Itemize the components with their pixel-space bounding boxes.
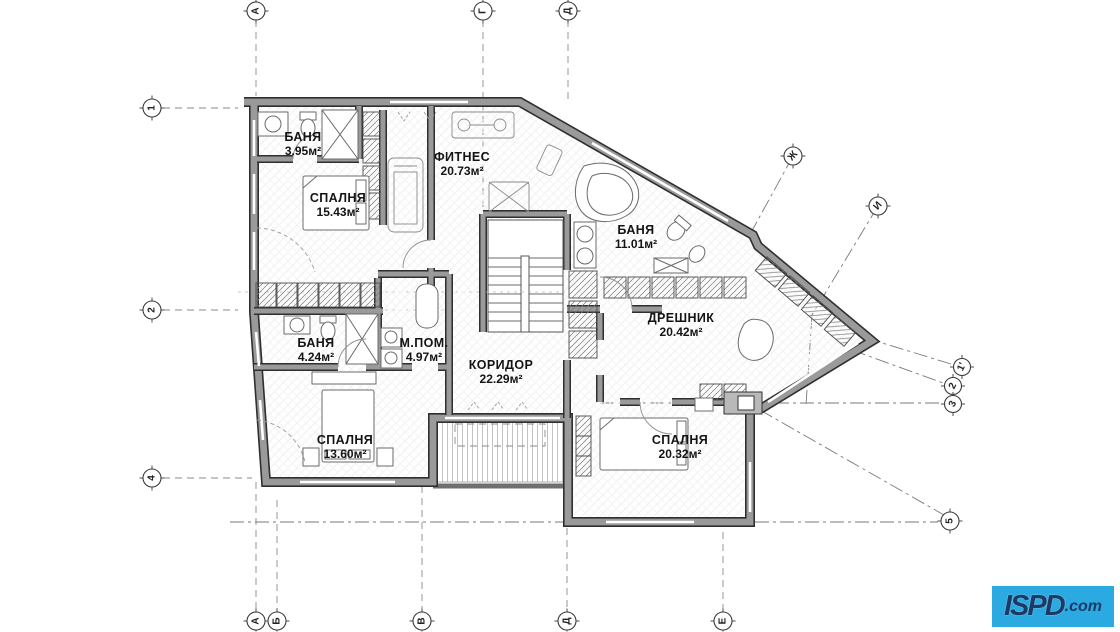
svg-text:БАНЯ: БАНЯ — [617, 223, 654, 237]
grid-marker-diag-3: 3 — [941, 392, 965, 416]
terrace-deck — [433, 420, 568, 486]
svg-text:11.01м²: 11.01м² — [615, 237, 657, 251]
grid-marker-left-1: 1 — [140, 96, 165, 121]
svg-text:1: 1 — [147, 105, 158, 111]
svg-text:2: 2 — [147, 307, 158, 313]
svg-text:ФИТНЕС: ФИТНЕС — [434, 150, 490, 164]
svg-text:Г: Г — [478, 8, 489, 14]
grid-marker-left-2: 2 — [140, 298, 165, 323]
svg-text:4.97м²: 4.97м² — [406, 350, 442, 364]
svg-text:20.73м²: 20.73м² — [441, 164, 484, 178]
logo-suffix: .com — [1065, 599, 1102, 615]
svg-text:А: А — [251, 7, 262, 14]
svg-text:4: 4 — [147, 475, 158, 481]
svg-text:Е: Е — [718, 617, 729, 624]
room-label-bedroom-13: СПАЛНЯ 13.60м² — [317, 433, 373, 461]
ottoman — [738, 319, 773, 360]
svg-text:Д: Д — [562, 617, 573, 624]
svg-text:20.32м²: 20.32м² — [659, 447, 702, 461]
svg-text:ДРЕШНИК: ДРЕШНИК — [648, 311, 715, 325]
grid-marker-right-5: 5 — [938, 509, 963, 534]
svg-text:БАНЯ: БАНЯ — [284, 130, 321, 144]
grid-marker-bottom-v: В — [410, 609, 435, 632]
svg-text:СПАЛНЯ: СПАЛНЯ — [317, 433, 373, 447]
svg-text:3.95м²: 3.95м² — [285, 144, 321, 158]
svg-text:СПАЛНЯ: СПАЛНЯ — [310, 191, 366, 205]
grid-marker-bottom-d: Д — [555, 609, 580, 632]
svg-text:5: 5 — [945, 518, 956, 524]
room-label-bedroom-20: СПАЛНЯ 20.32м² — [652, 433, 708, 461]
svg-text:22.29м²: 22.29м² — [480, 372, 523, 386]
svg-text:13.60м²: 13.60м² — [324, 447, 367, 461]
grid-marker-diag-1p: 1' — [950, 355, 974, 379]
logo-text: ISPD — [1004, 592, 1064, 621]
grid-marker-top-a: А — [244, 0, 269, 24]
room-label-bathroom-mid: БАНЯ 4.24м² — [297, 336, 334, 364]
svg-text:БАНЯ: БАНЯ — [297, 336, 334, 350]
svg-text:Б: Б — [272, 617, 283, 624]
svg-text:М.ПОМ.: М.ПОМ. — [400, 336, 449, 350]
grid-marker-diag-i: И — [866, 194, 891, 219]
grid-marker-bottom-b: Б — [265, 609, 290, 632]
grid-marker-left-4: 4 — [140, 466, 165, 491]
floor-plan-drawing: БАНЯ 3.95м² ФИТНЕС 20.73м² СПАЛНЯ 15.43м… — [0, 0, 1120, 632]
grid-marker-top-d: Д — [556, 0, 581, 24]
svg-text:Д: Д — [563, 7, 574, 14]
room-label-bathroom-large: БАНЯ 11.01м² — [615, 223, 657, 251]
svg-text:КОРИДОР: КОРИДОР — [469, 358, 533, 372]
room-label-bathroom-top: БАНЯ 3.95м² — [284, 130, 321, 158]
grid-marker-bottom-e: Е — [711, 609, 736, 632]
logo-ispd: ISPD.com — [992, 586, 1114, 627]
room-label-utility: М.ПОМ. 4.97м² — [400, 336, 449, 364]
svg-text:СПАЛНЯ: СПАЛНЯ — [652, 433, 708, 447]
svg-text:А: А — [251, 617, 262, 624]
grid-marker-top-g: Г — [471, 0, 496, 24]
svg-text:15.43м²: 15.43м² — [317, 205, 360, 219]
room-label-bedroom-15: СПАЛНЯ 15.43м² — [310, 191, 366, 219]
svg-text:В: В — [417, 617, 428, 624]
grid-marker-diag-zh: Ж — [781, 144, 806, 169]
svg-text:20.42м²: 20.42м² — [660, 325, 703, 339]
floor-plan-canvas: БАНЯ 3.95м² ФИТНЕС 20.73м² СПАЛНЯ 15.43м… — [0, 0, 1120, 632]
staircase — [486, 220, 565, 332]
grid-marker-bottom-a: А — [244, 609, 269, 632]
room-label-fitness: ФИТНЕС 20.73м² — [434, 150, 490, 178]
svg-text:4.24м²: 4.24м² — [298, 350, 334, 364]
